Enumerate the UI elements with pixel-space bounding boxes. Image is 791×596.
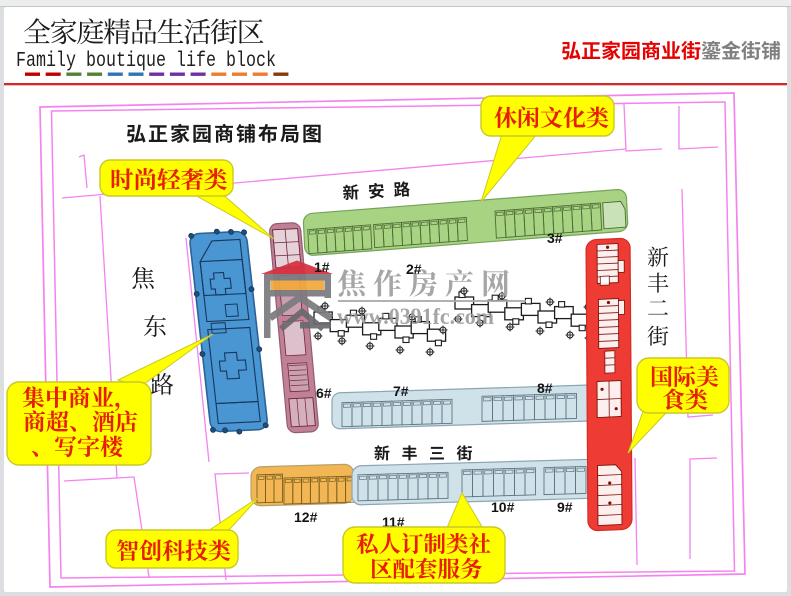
svg-text:3#: 3# [547, 230, 563, 246]
svg-text:9#: 9# [557, 499, 573, 515]
svg-text:12#: 12# [294, 509, 318, 525]
svg-text:1#: 1# [314, 259, 330, 275]
svg-text:6#: 6# [316, 385, 332, 401]
svg-text:www.0391fc.com: www.0391fc.com [337, 304, 494, 329]
svg-text:7#: 7# [393, 383, 409, 399]
svg-text:Family boutique life block: Family boutique life block [16, 50, 276, 73]
svg-text:10#: 10# [491, 499, 515, 515]
svg-text:2#: 2# [406, 261, 422, 277]
svg-text:8#: 8# [537, 380, 553, 396]
